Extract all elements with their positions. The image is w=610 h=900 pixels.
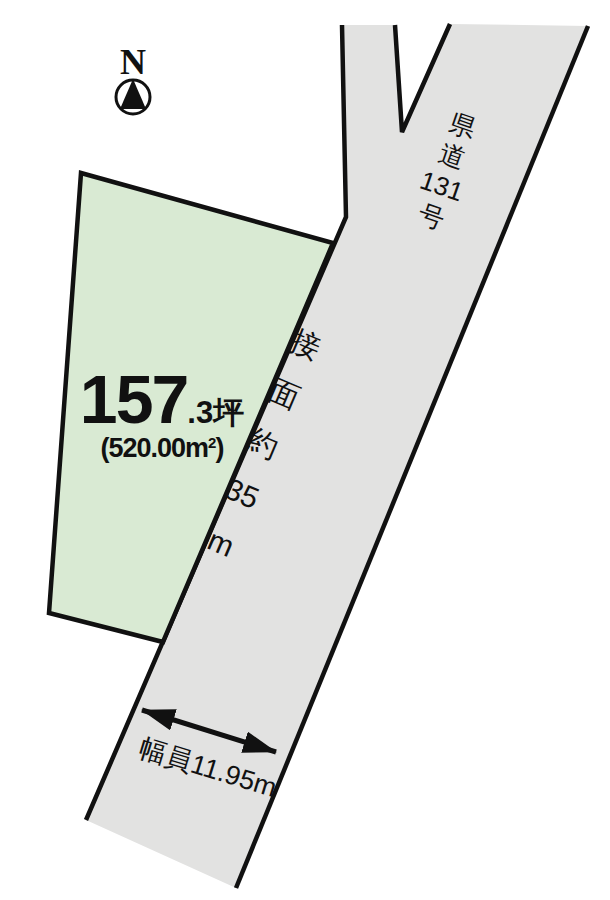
parcel-area-tsubo: 157.3坪 — [80, 365, 244, 433]
parcel-area-label: 157.3坪 (520.00m2) — [80, 365, 244, 462]
road-name-char: 号 — [415, 200, 448, 233]
road-name-char: 道 — [436, 139, 469, 172]
parcel-area-square-meters: (520.00m2) — [80, 435, 244, 462]
land-plot-diagram: N 157.3坪 (520.00m2) 県 道 131 号 接 面 約 35 m… — [0, 0, 610, 900]
parcel-area-m2-prefix: (520.00m — [101, 433, 209, 463]
parcel-area-tsubo-fraction: .3坪 — [187, 397, 244, 428]
parcel-area-tsubo-integer: 157 — [80, 365, 187, 433]
compass-north-label: N — [120, 44, 146, 80]
parcel-area-m2-suffix: ) — [215, 433, 223, 463]
parcel-area-m2-exponent: 2 — [208, 434, 215, 451]
road-name-char: 県 — [446, 109, 479, 142]
